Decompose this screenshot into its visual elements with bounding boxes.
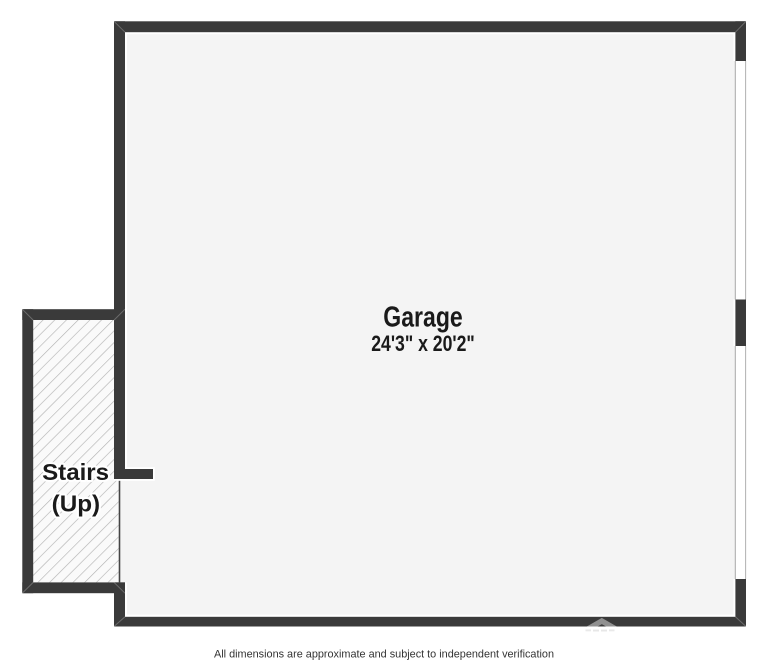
svg-text:All dimensions are approximate: All dimensions are approximate and subje… xyxy=(214,649,554,661)
svg-text:Garage: Garage xyxy=(383,300,463,332)
svg-text:Stairs: Stairs xyxy=(42,459,109,485)
svg-text:(Up): (Up) xyxy=(52,491,101,517)
svg-text:24'3" x 20'2": 24'3" x 20'2" xyxy=(371,331,475,356)
